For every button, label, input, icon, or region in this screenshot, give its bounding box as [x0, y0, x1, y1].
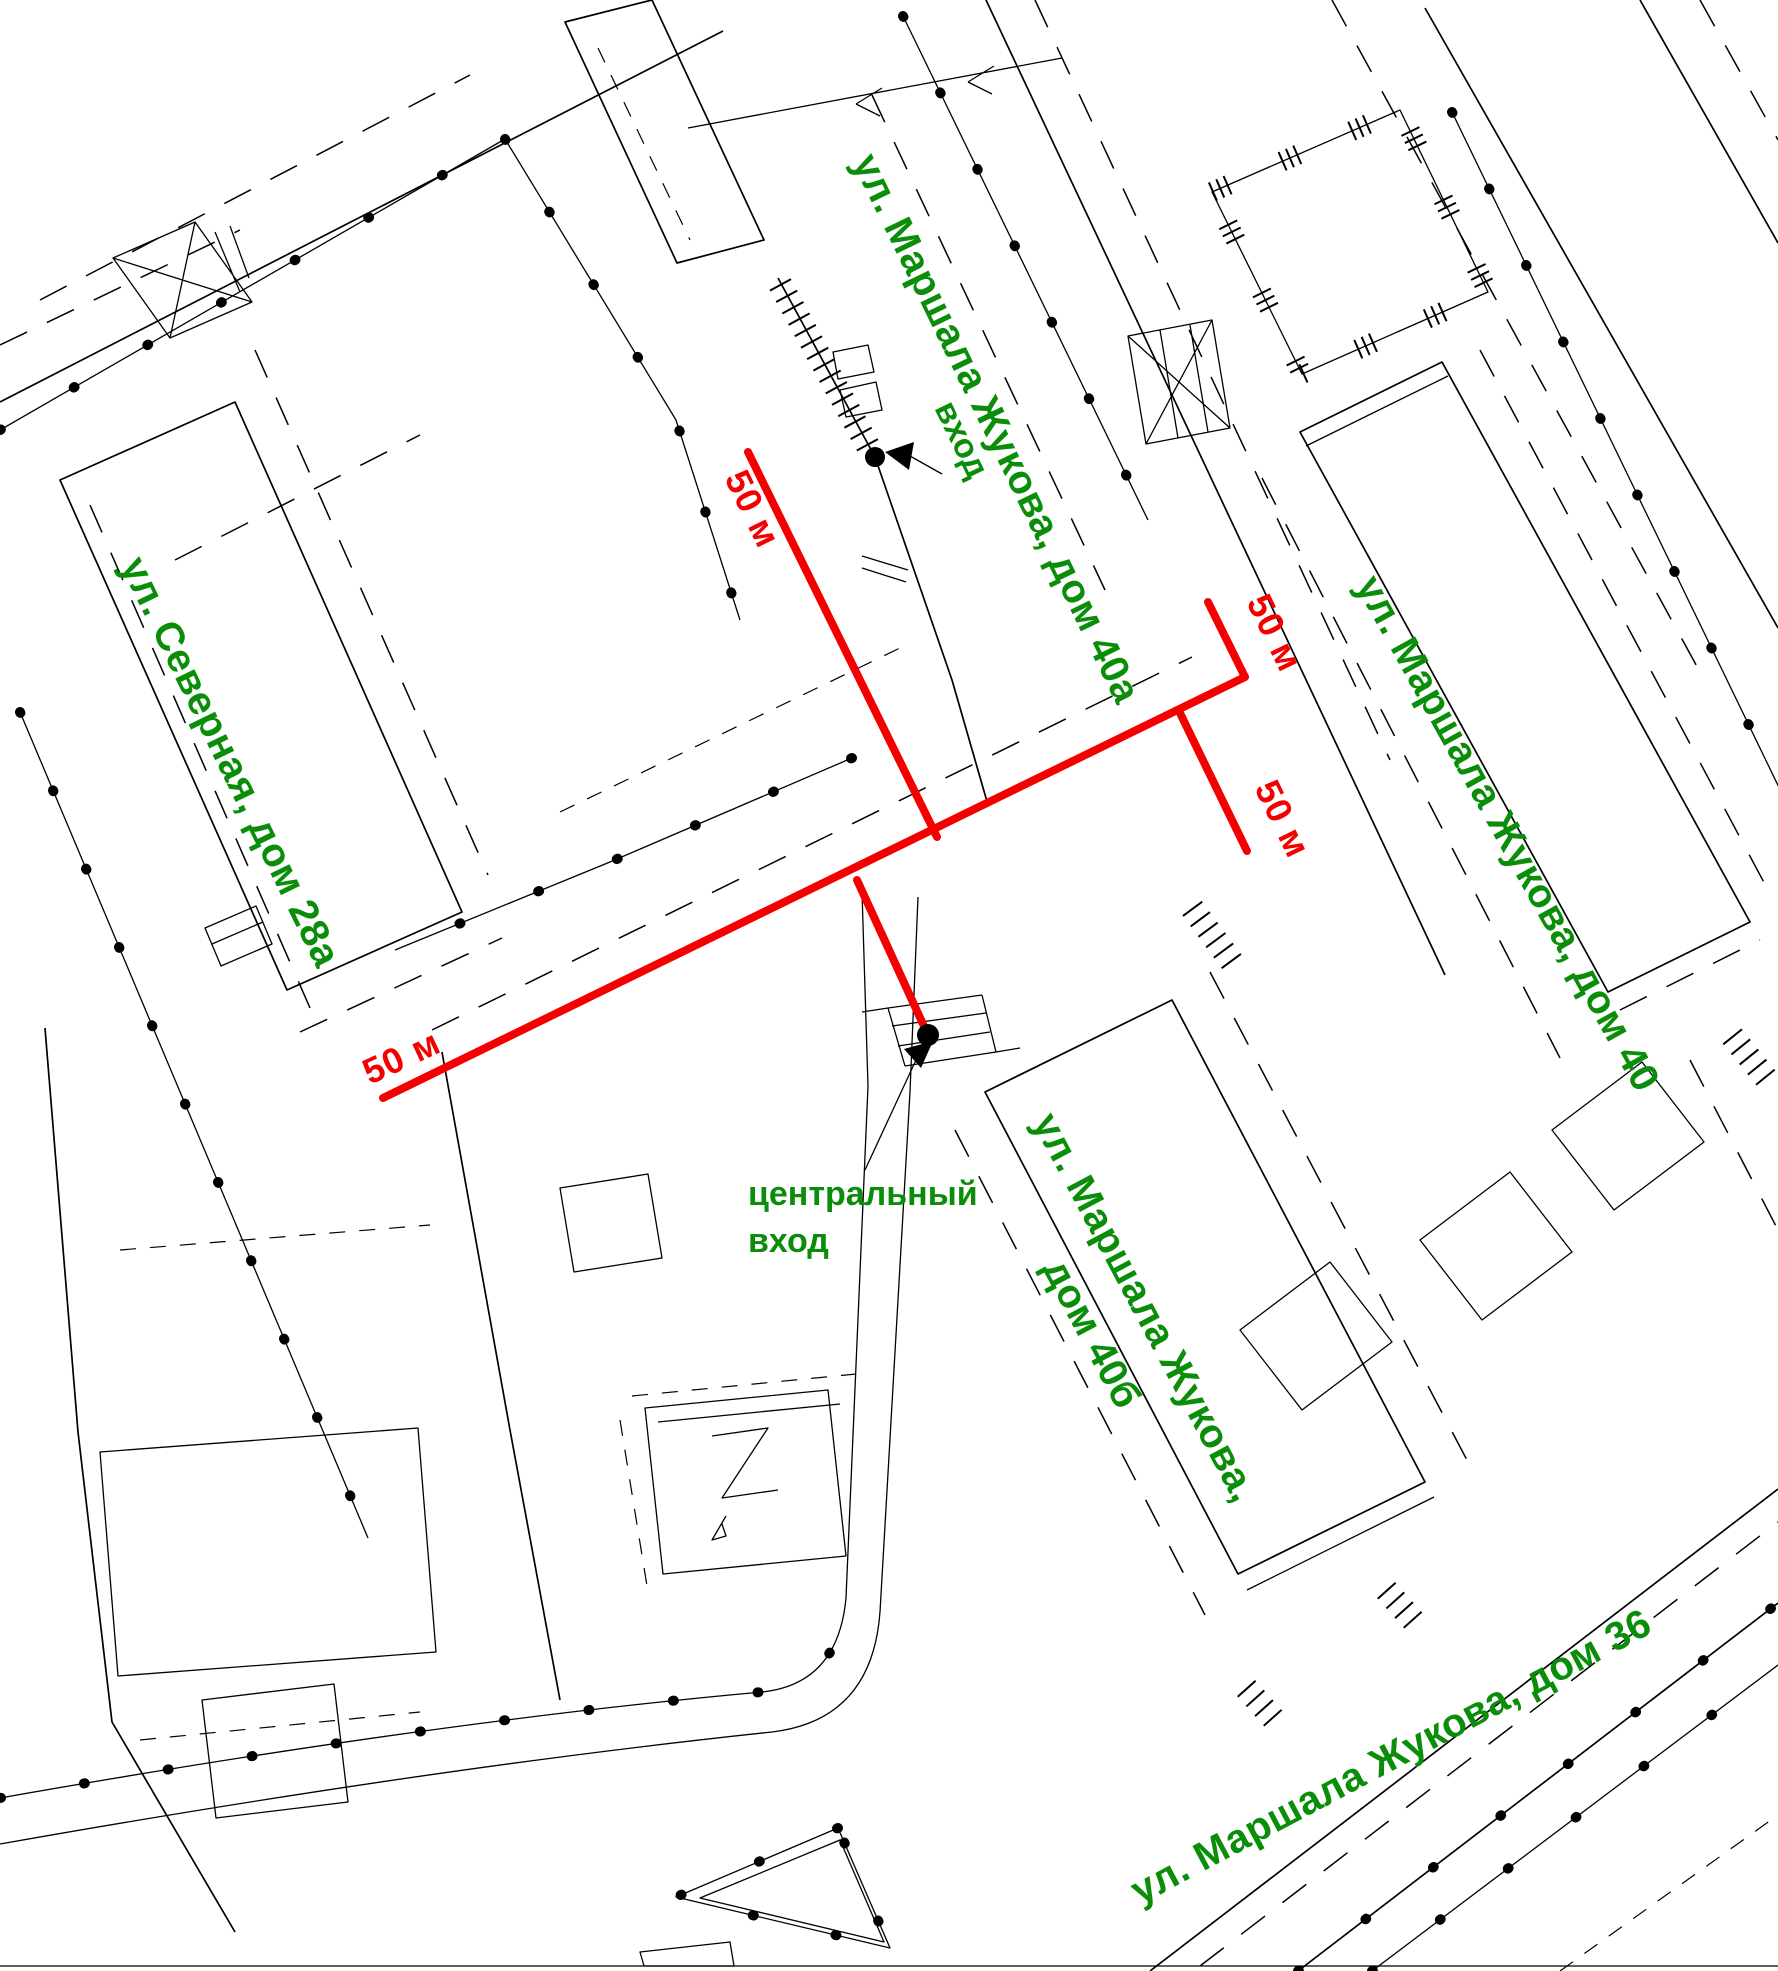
route-main-diagonal: [383, 677, 1245, 1098]
street-label-zhukova-40: ул. Маршала Жукова, дом 40: [1347, 568, 1668, 1099]
hatched-enclosure: [1212, 110, 1488, 374]
buildings-layer: [0, 0, 1768, 1966]
route-corner-segment: [1208, 602, 1245, 677]
bottom-left-parcel: [45, 1028, 856, 1932]
route-layer: [383, 452, 1247, 1098]
route-branch-40: [1180, 713, 1247, 851]
distance-label-left: 50 м: [356, 1021, 446, 1092]
labels-layer: ул. Маршала Жукова, дом 40а ул. Маршала …: [112, 147, 1668, 1913]
side-entrance-dot: [865, 447, 885, 467]
central-entrance-label-line1: центральный: [748, 1175, 978, 1213]
side-entrance-arrow-icon: [885, 442, 914, 470]
building-40a-block: [565, 0, 988, 805]
central-entrance-label-line2: вход: [748, 1222, 829, 1260]
site-plan-map: ул. Маршала Жукова, дом 40а ул. Маршала …: [0, 0, 1778, 1971]
fence-layer: [20, 16, 1148, 1538]
distance-label-branch: 50 м: [1247, 774, 1319, 864]
distance-label-corner: 50 м: [1239, 588, 1311, 678]
dom36-structures: [1240, 1036, 1766, 1726]
building-zhukova-40b: [862, 972, 1468, 1615]
street-label-severnaya-28a: ул. Северная, дом 28а: [112, 550, 349, 974]
site-plan: ул. Маршала Жукова, дом 40а ул. Маршала …: [0, 0, 1778, 1971]
walkway: [0, 892, 918, 1966]
